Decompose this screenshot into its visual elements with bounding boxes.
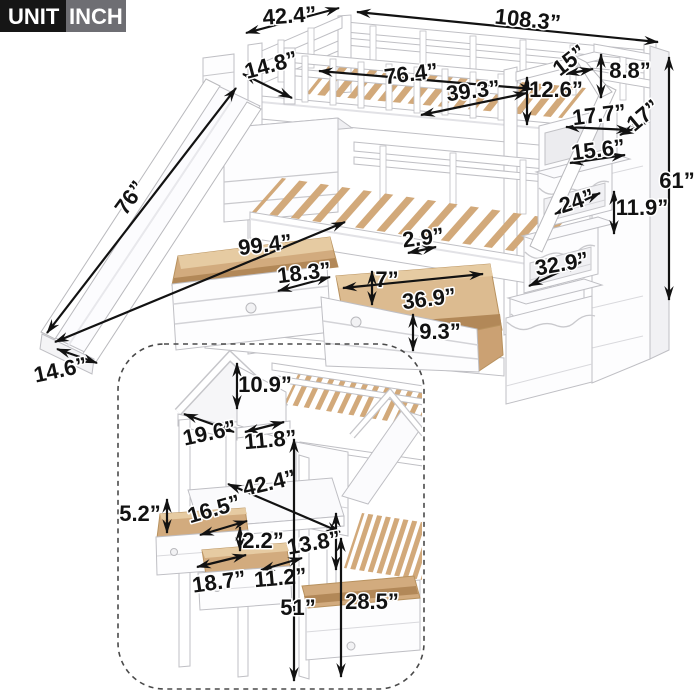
svg-text:11.2”: 11.2”	[253, 563, 308, 592]
svg-text:2.2”: 2.2”	[242, 528, 284, 553]
svg-text:5.2”: 5.2”	[119, 501, 161, 526]
svg-text:11.9”: 11.9”	[616, 195, 669, 220]
svg-text:28.5”: 28.5”	[345, 589, 399, 614]
svg-text:10.9”: 10.9”	[238, 372, 292, 397]
svg-text:61”: 61”	[659, 168, 694, 193]
svg-text:7”: 7”	[375, 267, 398, 292]
svg-text:2.9”: 2.9”	[401, 223, 445, 253]
svg-text:INCH: INCH	[69, 4, 123, 29]
svg-text:9.3”: 9.3”	[419, 319, 461, 344]
svg-text:UNIT: UNIT	[8, 4, 60, 29]
svg-text:12.6”: 12.6”	[529, 77, 583, 102]
svg-text:11.8”: 11.8”	[243, 425, 298, 454]
svg-text:8.8”: 8.8”	[609, 58, 651, 83]
svg-text:51”: 51”	[280, 595, 315, 620]
svg-text:42.4”: 42.4”	[262, 1, 317, 30]
